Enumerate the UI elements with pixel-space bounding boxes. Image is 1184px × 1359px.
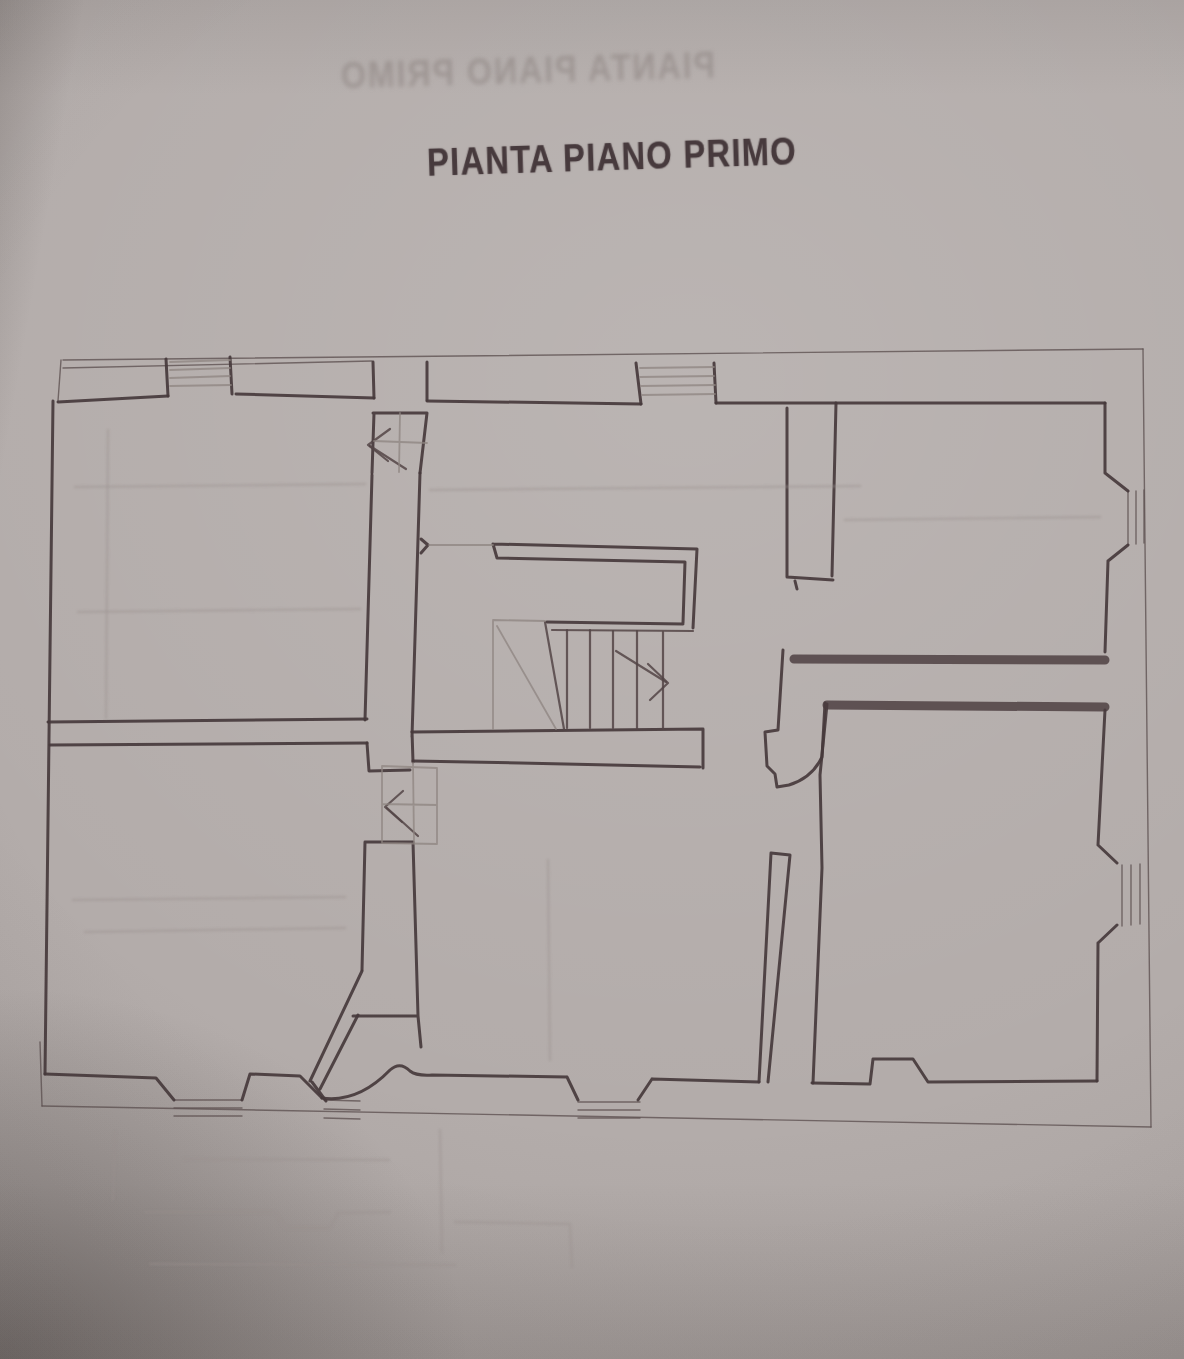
top-wall-outer-line <box>63 349 1143 360</box>
center-thick-wall <box>787 403 836 589</box>
bleed-window-shape <box>145 1212 390 1228</box>
stair-arrow-tail <box>616 651 666 682</box>
top-chimney-right-jambs <box>636 363 716 404</box>
bleed-line-top-left-room <box>78 609 360 612</box>
bleed-line-1 <box>184 1159 389 1160</box>
stair-hall-bottom-wall <box>412 729 703 768</box>
diagonal-wall <box>310 971 362 1089</box>
hall-wall-nib <box>421 539 428 553</box>
door-top-arrow-tail <box>370 446 406 469</box>
stair-winder-line <box>545 622 564 729</box>
top-wall-outer-line-2 <box>63 361 372 368</box>
bottom-center-inner-face <box>322 1066 759 1100</box>
center-finger-wall <box>759 853 790 1082</box>
bleed-vert-center <box>440 1130 442 1252</box>
right-wall-outer-line <box>1143 349 1151 1127</box>
window-right-upper <box>1128 490 1144 545</box>
top-left-room-bottom-wall <box>48 719 367 722</box>
layer-light <box>170 360 715 844</box>
bleed-vert-bottom-center <box>548 860 550 1060</box>
top-left-room-right-wall <box>365 475 372 720</box>
closet-under-stair <box>353 842 421 1047</box>
door-left-arrow <box>385 791 403 822</box>
bleed-line-2 <box>150 1264 455 1265</box>
left-wall-lower-outer-line <box>40 1042 42 1106</box>
window-bottom-left-a <box>174 1100 242 1116</box>
stair-upper-flight <box>429 545 556 729</box>
top-wall-inner-face <box>58 394 1105 404</box>
bleed-line-left-vert <box>113 1132 115 1200</box>
stair-hall-left-wall <box>412 473 420 762</box>
right-room-bottom-face <box>812 1059 1097 1084</box>
right-room-right-face <box>1097 710 1117 1081</box>
layer-thin <box>40 349 1151 1127</box>
left-exterior-wall <box>45 401 53 1074</box>
divider-wall-b-right-rooms <box>827 705 1105 707</box>
layer-ghost <box>73 430 1100 1267</box>
stair-enclosure <box>493 544 697 628</box>
divider-a-left-end <box>765 650 825 787</box>
window-right-lower <box>1122 864 1140 926</box>
bleed-shape-right <box>455 1222 572 1267</box>
top-chimney-right-hatch <box>640 367 715 395</box>
stair-lower-bar <box>552 630 693 631</box>
bleed-line-top-right-room <box>845 517 1100 520</box>
door-top-leaf <box>374 413 427 472</box>
window-bottom-center <box>578 1102 640 1118</box>
top-right-room-right-face <box>1105 403 1128 652</box>
photographed-plan-page: PIANTA PIANO PRIMO PIANTA PIANO PRIMO <box>0 0 1184 1359</box>
divider-wall-a-right-rooms <box>794 659 1105 660</box>
door-left-leaf <box>382 763 437 844</box>
layer-heavy <box>45 357 1128 1101</box>
layer-band <box>794 659 1105 707</box>
bleed-band-top-left-room <box>75 484 860 490</box>
top-left-corner-link <box>58 360 61 401</box>
stair-treads <box>567 630 663 729</box>
floor-plan-drawing <box>0 0 1184 1359</box>
window-bottom-left-b <box>324 1100 360 1119</box>
right-room-left-wall-line <box>813 704 827 1083</box>
bleed-band-bottom-left <box>73 897 345 932</box>
bottom-left-room-top-wall <box>50 743 367 745</box>
bottom-left-room-bottom-face <box>45 1074 174 1100</box>
bleed-vert-top-left-room <box>106 430 108 718</box>
